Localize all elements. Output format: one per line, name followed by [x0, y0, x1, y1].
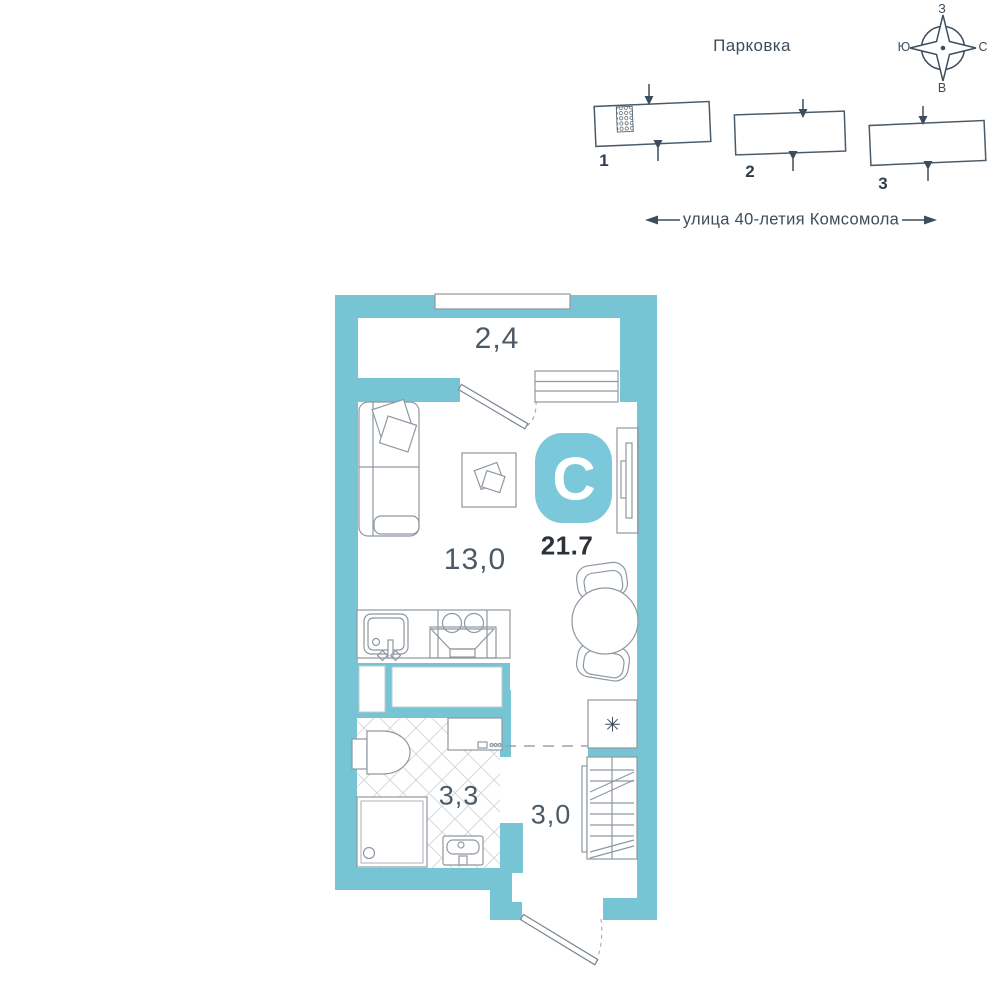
rug: [462, 453, 516, 507]
studio-logo-letter: С: [552, 445, 595, 514]
up-arrow-icon: [924, 161, 933, 170]
balcony-block-radiator: [535, 371, 618, 402]
parking-lot-2: [734, 111, 845, 155]
parking-entrance-hatch: [616, 106, 633, 132]
wall-niche-small: [359, 666, 385, 712]
bathroom-area-label: 3,3: [439, 781, 480, 812]
round-table: [572, 588, 638, 654]
wall-niche-large: [392, 667, 502, 707]
washbasin: [443, 836, 483, 865]
parking-lot-1-number: 1: [599, 151, 608, 171]
left-arrow-icon: [645, 216, 658, 225]
parking-lot-2-number: 2: [745, 162, 754, 182]
balcony-door: [458, 384, 536, 428]
balcony-area-label: 2,4: [475, 322, 520, 356]
vanity-unit: [448, 718, 502, 750]
sofa: [359, 399, 419, 536]
shower: [357, 797, 427, 867]
compass-north-label: С: [978, 40, 987, 54]
parking-lot-1: [594, 101, 711, 146]
dining-set: [572, 561, 638, 683]
compass-east-label: В: [938, 81, 946, 95]
parking-lot-3: [869, 120, 986, 165]
parking-title: Парковка: [713, 36, 791, 56]
plan-canvas: ✳: [0, 0, 1000, 1000]
compass-west-label: З: [938, 2, 946, 16]
compass-south-label: Ю: [898, 40, 911, 54]
parking-lot-3-number: 3: [878, 174, 887, 194]
wardrobe: [582, 757, 637, 859]
street-label: улица 40-летия Комсомола: [683, 211, 899, 230]
up-arrow-icon: [789, 151, 798, 160]
living-room-area-label: 13,0: [444, 543, 506, 577]
balcony-window: [435, 294, 570, 309]
apartment-floor-plan: ✳: [335, 294, 657, 965]
floorplan-page: ✳: [0, 0, 1000, 1000]
fridge: ✳: [588, 700, 637, 748]
entrance-door: [520, 914, 601, 964]
total-area-label: 21.7: [541, 531, 594, 562]
compass-rose-icon: [910, 15, 976, 81]
right-arrow-icon: [924, 216, 937, 225]
kitchen-counter: [357, 610, 510, 660]
tv-unit: [617, 428, 638, 533]
fridge-snowflake-icon: ✳: [604, 715, 621, 737]
hallway-area-label: 3,0: [531, 800, 572, 831]
